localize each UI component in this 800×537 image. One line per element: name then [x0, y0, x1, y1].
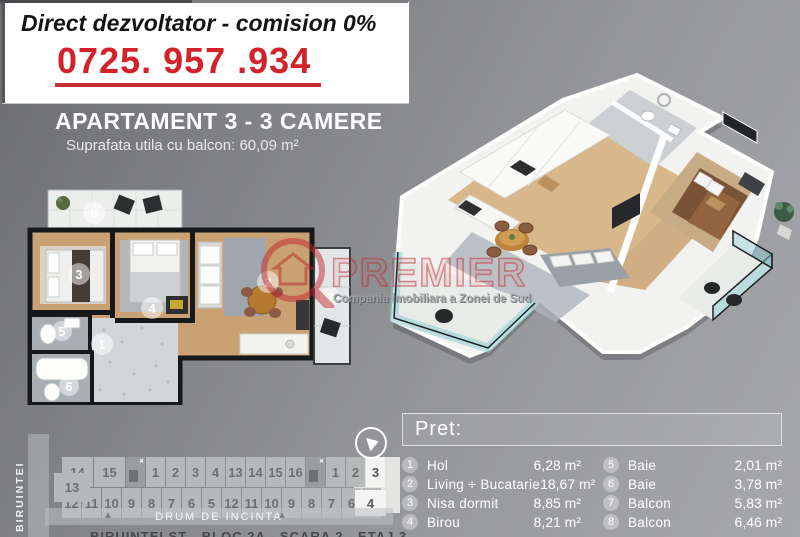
- chair-icon: [704, 282, 720, 294]
- room-area: 2,01 m²: [735, 457, 782, 473]
- room-number-badge: 6: [603, 476, 619, 492]
- room-label: Baie: [628, 458, 656, 473]
- site-plan-unit: 3: [366, 457, 385, 487]
- plant-icon: [56, 196, 70, 210]
- site-plan-unit: 13: [226, 457, 245, 487]
- header-box: Direct dezvoltator - comision 0% 0725. 9…: [2, 2, 409, 103]
- plant-icon: [774, 202, 794, 240]
- room-area: 3,78 m²: [735, 476, 782, 492]
- room-label: Balcon: [628, 496, 671, 511]
- entrance-arrow-icon: ▲: [277, 510, 289, 521]
- apartment-area-subtitle: Suprafata utila cu balcon: 60,09 m²: [66, 137, 299, 154]
- street-name: BIRUINTEI: [14, 452, 26, 532]
- phone-number: 0725. 957 .934: [55, 40, 321, 87]
- site-plan-unit: 1: [326, 457, 345, 487]
- room-marker: 1: [98, 337, 105, 352]
- top-border-strip: [0, 0, 408, 3]
- room-marker: 2: [264, 275, 271, 290]
- site-plan-unit: 16: [286, 457, 305, 487]
- room-marker: 7: [326, 290, 333, 305]
- bathtub: [36, 358, 88, 380]
- developer-tagline: Direct dezvoltator - comision 0%: [21, 10, 409, 37]
- balcony-8-top: [48, 190, 182, 230]
- room-marker: 5: [58, 324, 65, 339]
- price-panel: Pret: 1 Hol 6,28 m² 2 Living + Bucatarie…: [402, 413, 782, 530]
- price-row: 8 Balcon 6,46 m²: [603, 514, 782, 530]
- room-number-badge: 3: [402, 495, 418, 511]
- room-area: 8,21 m²: [534, 514, 581, 530]
- room-marker: 6: [65, 379, 72, 394]
- site-plan-unit: 14: [246, 457, 265, 487]
- room-label: Hol: [427, 458, 448, 473]
- room-area: 8,85 m²: [534, 495, 581, 511]
- price-row: 3 Nisa dormit 8,85 m²: [402, 495, 581, 511]
- site-plan-unit: 1: [146, 457, 165, 487]
- window: [723, 112, 757, 143]
- room-number-badge: 1: [402, 457, 418, 473]
- site-plan: BIRUINTEI 1415123413141516123 1211109876…: [0, 420, 400, 537]
- building-row-top: 1415123413141516123: [62, 457, 385, 487]
- site-plan-unit: 4: [206, 457, 225, 487]
- floor-plan-3d: [385, 55, 800, 405]
- price-column-left: 1 Hol 6,28 m² 2 Living + Bucatarie 18,67…: [402, 457, 581, 530]
- clipped-address-caption: BIRUINTEI ST - BLOC 2A - SCARA 2 - ETAJ …: [90, 529, 410, 537]
- site-plan-unit: [126, 457, 145, 487]
- room-area: 6,28 m²: [534, 457, 581, 473]
- price-row: 7 Balcon 5,83 m²: [603, 495, 782, 511]
- stove: [296, 300, 309, 330]
- price-row: 5 Baie 2,01 m²: [603, 457, 782, 473]
- site-plan-unit-offset: 13: [54, 473, 90, 502]
- apartment-title: APARTAMENT 3 - 3 CAMERE: [55, 108, 383, 135]
- room-number-badge: 8: [603, 514, 619, 530]
- floor-plan-2d: 1 2 3 4 5 6 7 8: [20, 185, 355, 405]
- room-label: Nisa dormit: [427, 496, 499, 511]
- chair-icon: [435, 309, 453, 323]
- room-label: Birou: [427, 515, 460, 530]
- price-row: 2 Living + Bucatarie 18,67 m²: [402, 476, 581, 492]
- room-area: 5,83 m²: [735, 495, 782, 511]
- site-plan-unit: 3: [186, 457, 205, 487]
- toilet: [44, 383, 60, 401]
- room-marker: 4: [148, 301, 156, 316]
- price-row: 6 Baie 3,78 m²: [603, 476, 782, 492]
- room-number-badge: 5: [603, 457, 619, 473]
- road-band: ▲ DRUM DE INCINTA ▲: [45, 508, 393, 525]
- room-number-badge: 4: [402, 514, 418, 530]
- chair-icon: [726, 294, 742, 306]
- site-plan-unit: 15: [266, 457, 285, 487]
- price-title: Pret:: [402, 413, 782, 446]
- room-label: Balcon: [628, 515, 671, 530]
- site-plan-unit: [306, 457, 325, 487]
- room-label: Baie: [628, 477, 656, 492]
- road-label: DRUM DE INCINTA: [155, 511, 283, 523]
- room-number-badge: 2: [402, 476, 418, 492]
- flyer-canvas: Direct dezvoltator - comision 0% 0725. 9…: [0, 0, 800, 537]
- price-row: 1 Hol 6,28 m²: [402, 457, 581, 473]
- room-label: Living + Bucatarie: [427, 477, 540, 492]
- price-row: 4 Birou 8,21 m²: [402, 514, 581, 530]
- price-column-right: 5 Baie 2,01 m² 6 Baie 3,78 m² 7 Balcon 5…: [603, 457, 782, 530]
- site-plan-unit: 2: [346, 457, 365, 487]
- kitchen-counter: [240, 334, 308, 354]
- entrance-arrow-icon: ▲: [103, 510, 115, 521]
- site-plan-unit: 15: [94, 457, 125, 487]
- compass-icon: [355, 427, 387, 459]
- room-number-badge: 7: [603, 495, 619, 511]
- room-area: 6,46 m²: [735, 514, 782, 530]
- site-plan-unit: 2: [166, 457, 185, 487]
- room-area: 18,67 m²: [540, 476, 595, 492]
- room-marker: 8: [90, 206, 97, 221]
- room-marker: 3: [75, 267, 82, 282]
